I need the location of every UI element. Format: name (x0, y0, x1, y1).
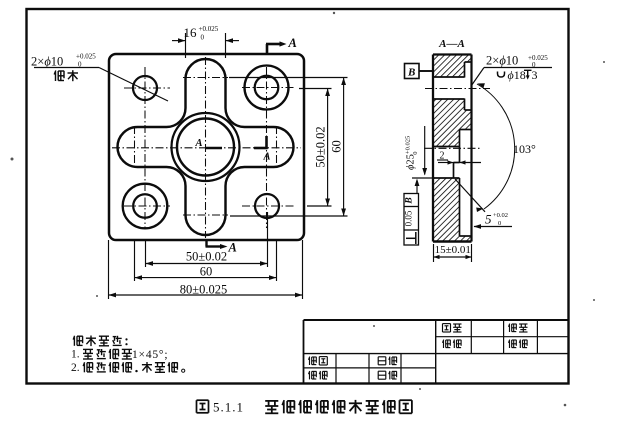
svg-text:3: 3 (532, 68, 538, 82)
svg-text:5.1.1: 5.1.1 (213, 400, 244, 415)
svg-text:2.: 2. (71, 362, 80, 374)
svg-text:50±0.02: 50±0.02 (186, 250, 227, 264)
svg-text:2×ϕ10: 2×ϕ10 (31, 55, 63, 69)
svg-text:A—A: A—A (438, 38, 465, 50)
svg-text:60: 60 (200, 265, 213, 279)
svg-text:60: 60 (330, 140, 344, 153)
svg-text:A: A (195, 138, 203, 149)
svg-text:50±0.02: 50±0.02 (314, 126, 328, 167)
svg-text:15±0.01: 15±0.01 (435, 244, 471, 256)
svg-text:A: A (228, 241, 237, 255)
svg-text:2×ϕ10: 2×ϕ10 (486, 54, 518, 68)
svg-text:+0.025: +0.025 (199, 25, 219, 33)
svg-text:5: 5 (485, 212, 492, 227)
svg-text:B: B (407, 67, 415, 79)
svg-text:B: B (405, 197, 415, 204)
svg-text:0: 0 (201, 34, 205, 42)
svg-text:16: 16 (184, 25, 198, 40)
svg-text:1.: 1. (71, 349, 80, 361)
svg-text:80±0.025: 80±0.025 (180, 283, 228, 297)
svg-text:A: A (263, 152, 271, 163)
svg-text:A: A (288, 36, 297, 50)
svg-text:0.05: 0.05 (404, 210, 414, 226)
svg-text:+0.025: +0.025 (76, 53, 96, 61)
svg-text:ϕ18: ϕ18 (508, 68, 526, 82)
svg-text:+0.02: +0.02 (493, 212, 508, 219)
svg-text:1×45°;: 1×45°; (132, 349, 168, 361)
svg-text:103°: 103° (513, 142, 536, 156)
